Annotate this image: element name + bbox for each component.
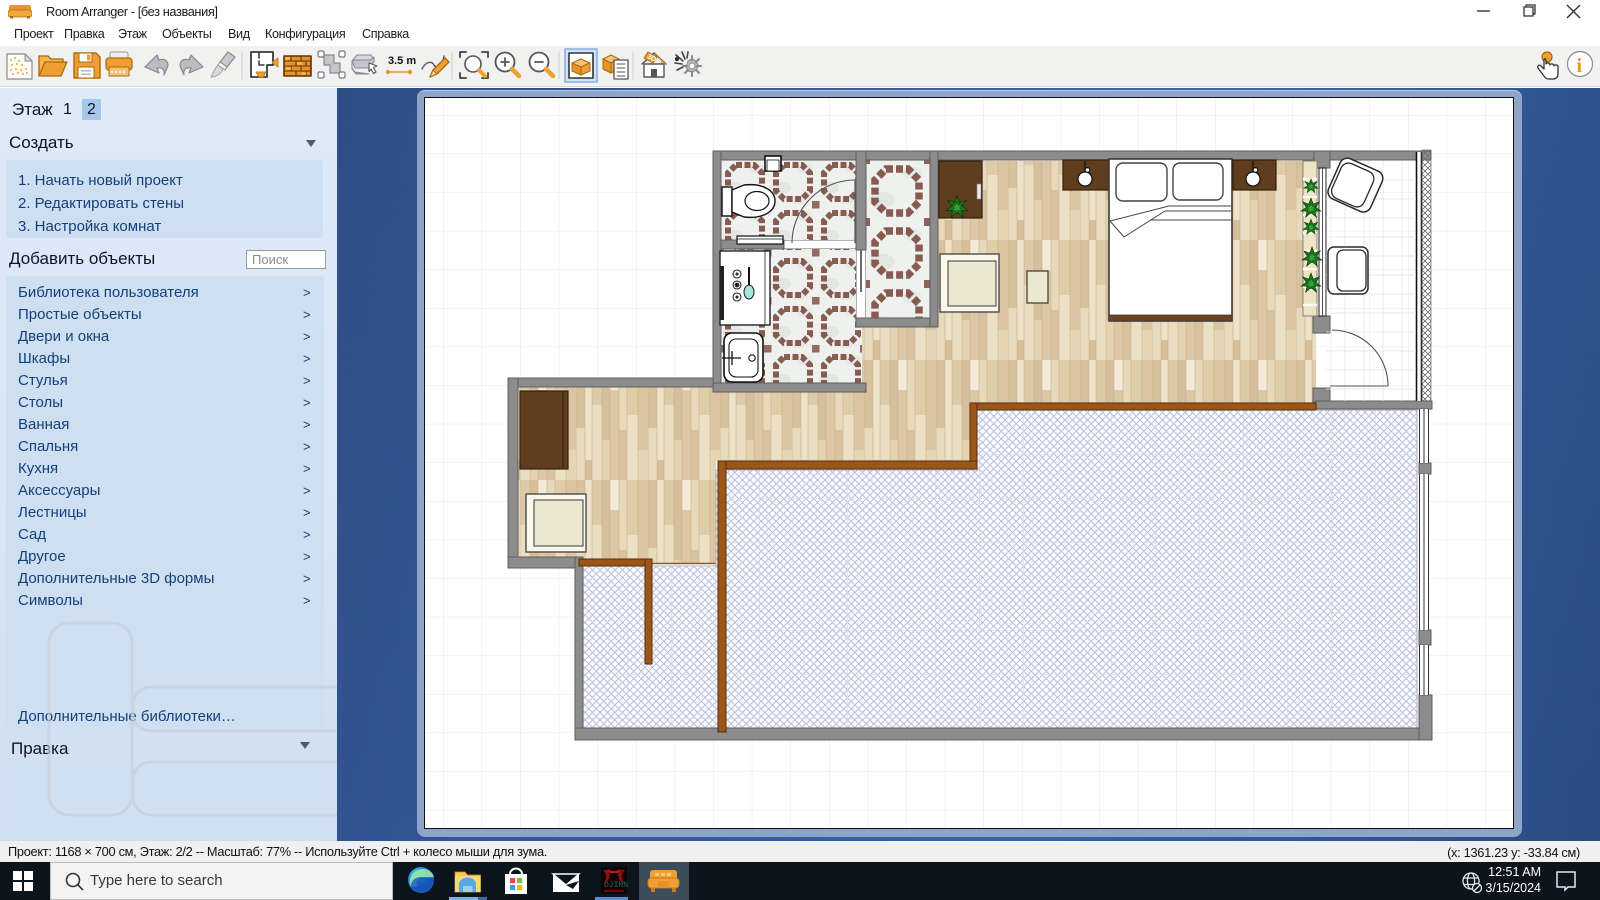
svg-text:i: i bbox=[1577, 55, 1583, 77]
svg-text:DJINN: DJINN bbox=[604, 881, 628, 890]
svg-text:3.5 m: 3.5 m bbox=[388, 55, 416, 67]
